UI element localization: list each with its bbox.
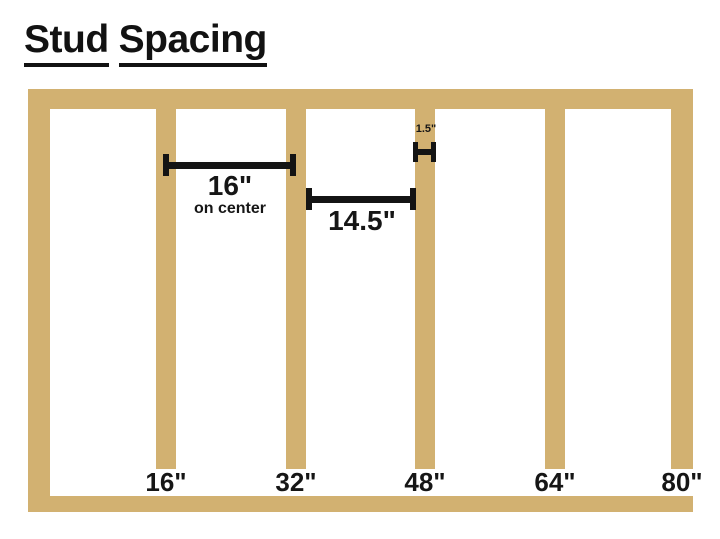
position-label-32: 32" bbox=[272, 469, 319, 496]
stud-3 bbox=[286, 89, 306, 512]
stud-1 bbox=[28, 89, 50, 512]
stud-spacing-diagram: StudSpacing 16" on center 14.5" 1.5" 16"… bbox=[0, 0, 720, 539]
dim-14-5-line bbox=[306, 196, 416, 203]
dim-16-value: 16" bbox=[208, 170, 252, 202]
stud-6 bbox=[671, 89, 693, 512]
dim-14-5-value: 14.5" bbox=[328, 205, 396, 237]
stud-2 bbox=[156, 89, 176, 512]
wall-frame bbox=[28, 89, 693, 512]
dim-1-5-value: 1.5" bbox=[416, 123, 437, 135]
position-label-48: 48" bbox=[401, 469, 448, 496]
dim-1-5-line bbox=[413, 149, 436, 155]
position-label-64: 64" bbox=[531, 469, 578, 496]
top-plate bbox=[28, 89, 693, 109]
bottom-plate bbox=[28, 496, 693, 512]
dim-16-caption: on center bbox=[194, 200, 266, 218]
dim-16-line bbox=[163, 162, 296, 169]
stud-5 bbox=[545, 89, 565, 512]
page-title: StudSpacing bbox=[24, 18, 267, 67]
position-label-80: 80" bbox=[658, 469, 705, 496]
position-label-16: 16" bbox=[142, 469, 189, 496]
title-word-spacing: Spacing bbox=[119, 18, 267, 67]
title-word-stud: Stud bbox=[24, 18, 109, 67]
